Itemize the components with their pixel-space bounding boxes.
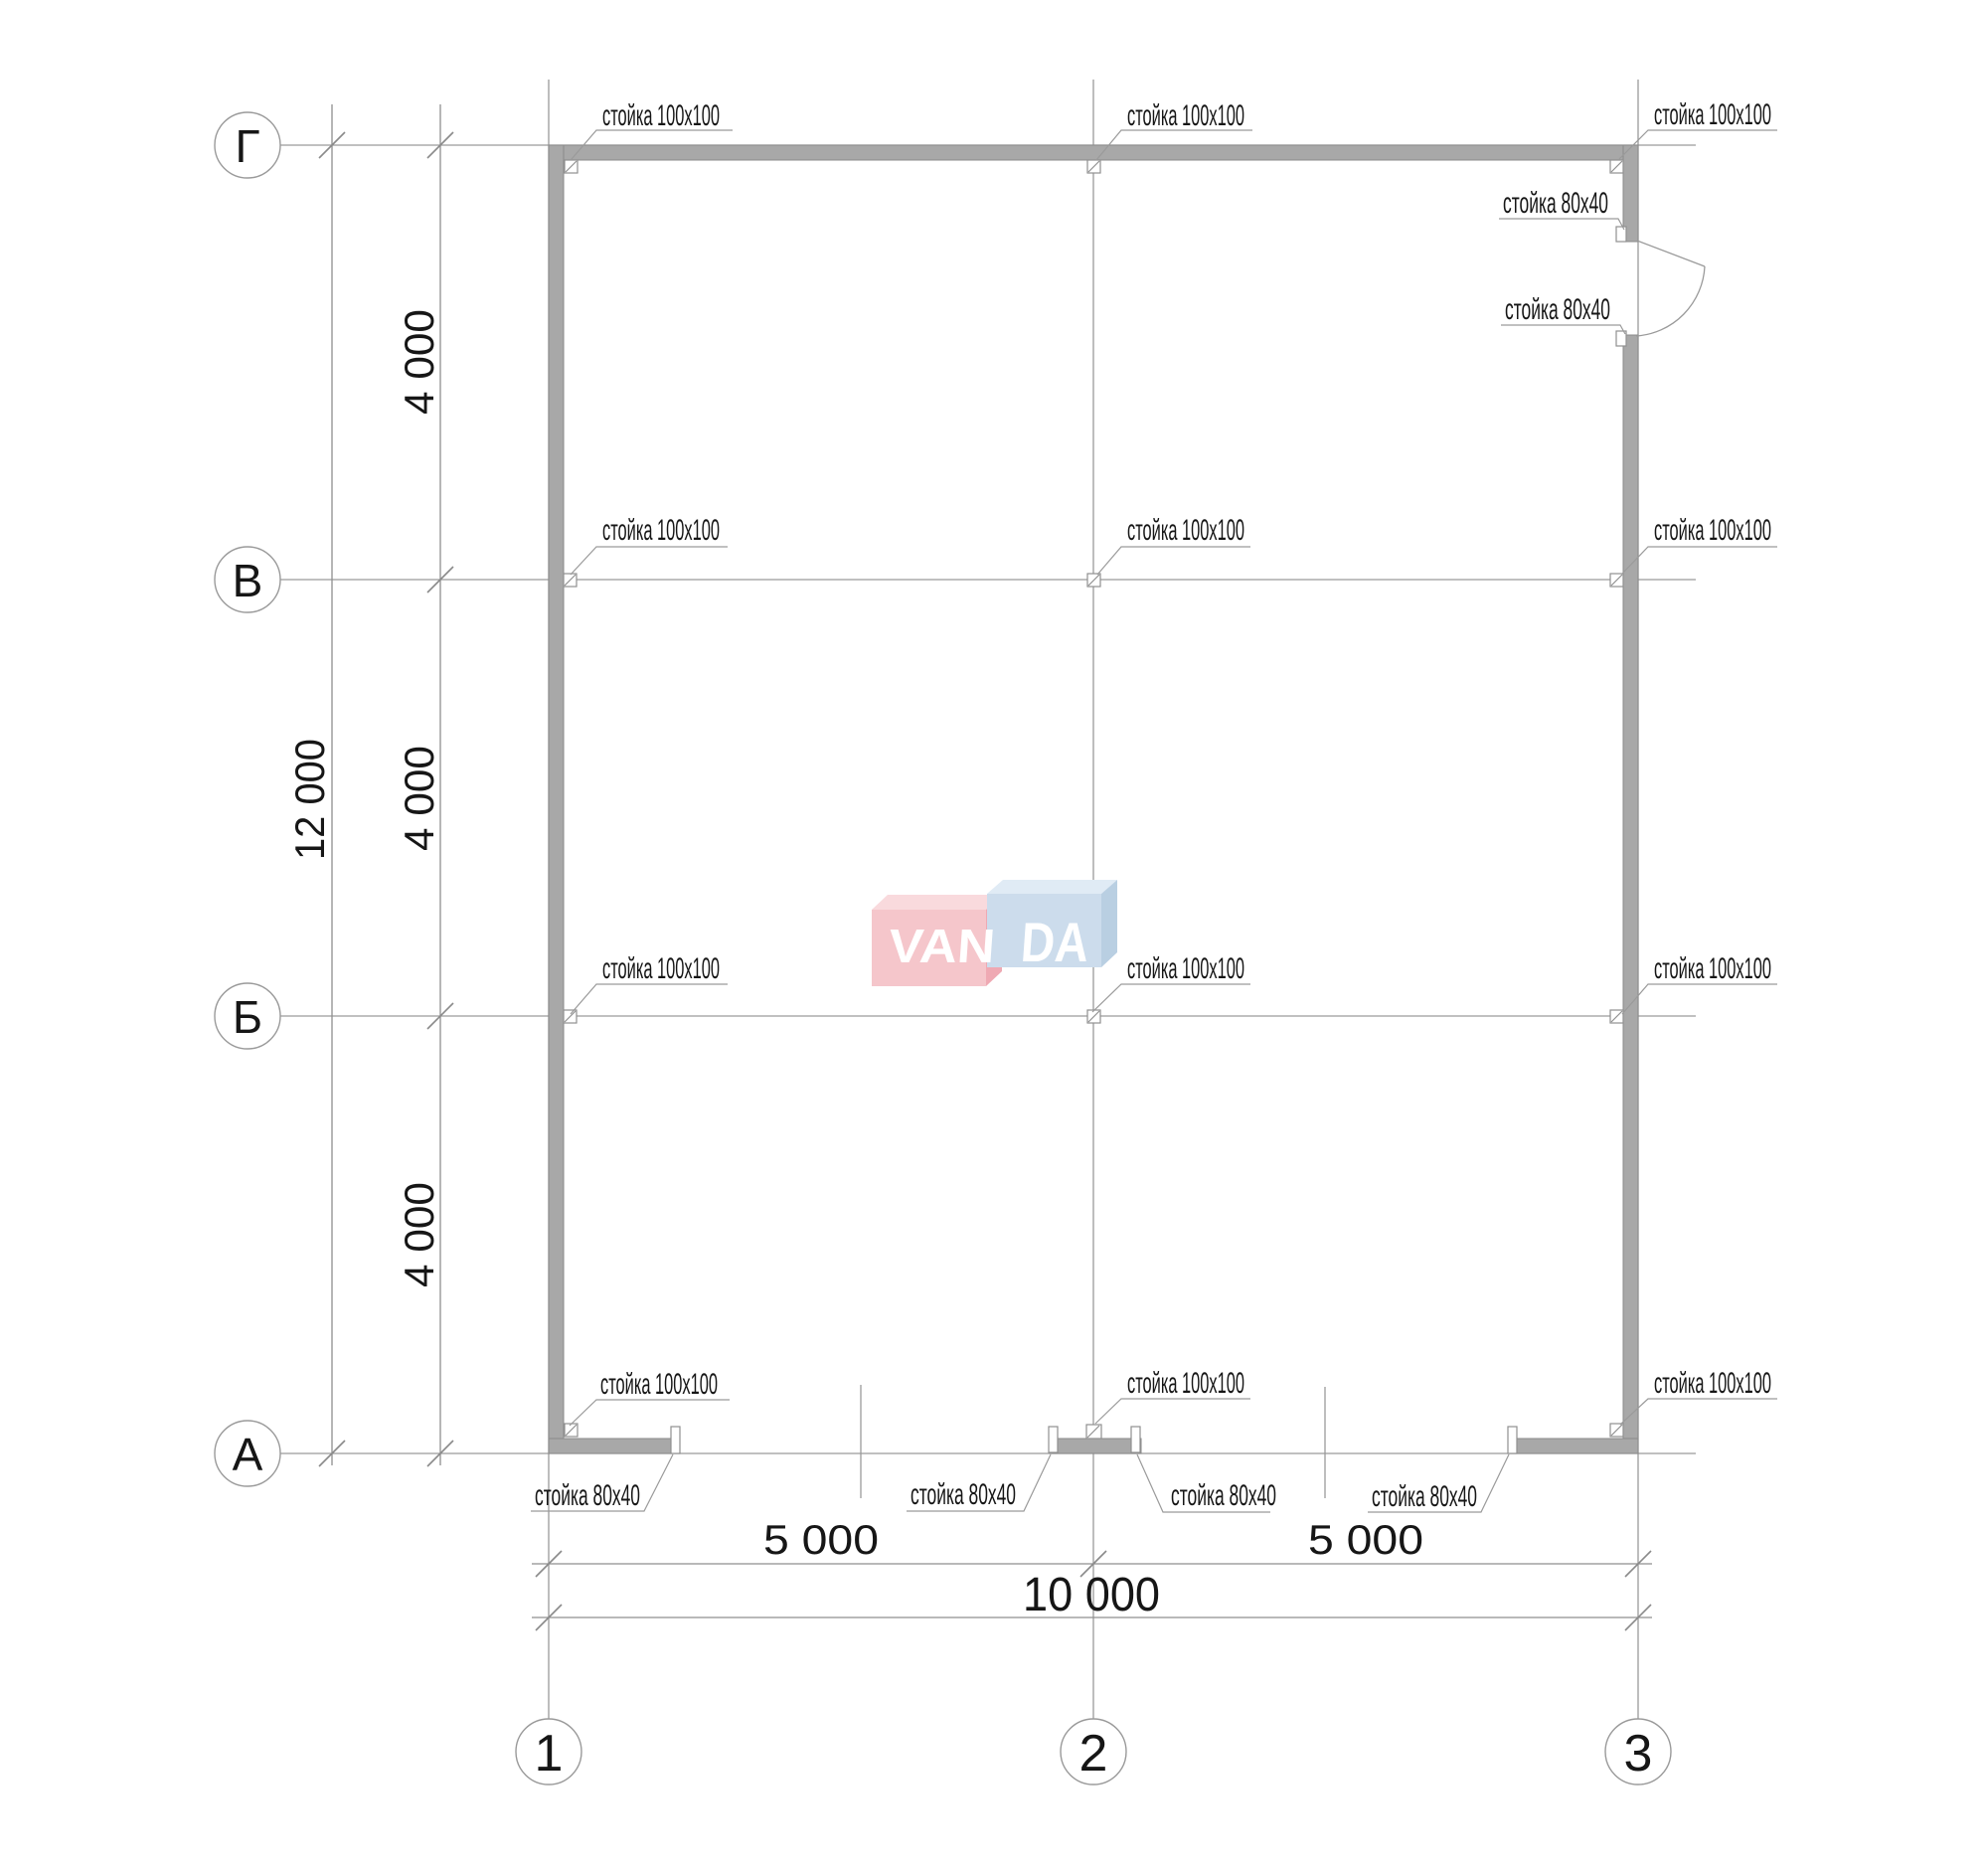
axis-row-label: В (233, 555, 263, 606)
logo-blue-box-side (1101, 880, 1117, 967)
post-label: стойка 100x100 (1127, 952, 1244, 985)
leader-lines (531, 130, 1777, 1512)
axis-row-label: Б (233, 991, 262, 1043)
post-label: стойка 100x100 (602, 952, 720, 985)
post-100-b3 (1610, 1010, 1623, 1023)
post-label: стойка 100x100 (1127, 1367, 1244, 1400)
dim-bottom-seg-1: 5 000 (763, 1516, 879, 1563)
dim-left-seg-2: 4 000 (396, 746, 442, 851)
post-label: стойка 100x100 (1654, 514, 1771, 547)
post-100-a2 (1086, 1425, 1101, 1439)
door-arc (1636, 266, 1705, 336)
axis-row-label: А (233, 1429, 263, 1480)
post-80-bottom-3 (1131, 1427, 1140, 1452)
post-80-bottom-4 (1508, 1427, 1517, 1453)
post-label: стойка 80x40 (911, 1478, 1016, 1511)
dim-bottom-total: 10 000 (1023, 1569, 1160, 1621)
posts-80x40 (671, 227, 1626, 1453)
post-label: стойка 100x100 (602, 514, 720, 547)
wall-bottom-left (549, 1439, 673, 1453)
post-label: стойка 80x40 (535, 1479, 640, 1512)
post-label: стойка 100x100 (600, 1368, 718, 1401)
logo-text-da: DA (1019, 911, 1090, 973)
wall-left (549, 145, 564, 1453)
dim-left-total: 12 000 (286, 739, 333, 860)
axis-col-label: 1 (535, 1725, 564, 1783)
post-label: стойка 80x40 (1505, 293, 1610, 326)
post-80-bottom-1 (671, 1427, 680, 1453)
post-100-a3 (1610, 1424, 1623, 1437)
post-label: стойка 100x100 (1654, 952, 1771, 985)
axis-col-label: 2 (1079, 1725, 1108, 1783)
post-100-v1 (564, 574, 577, 587)
logo-blue-box-top (987, 880, 1117, 894)
logo-pink-box-top (872, 895, 1002, 910)
post-label: стойка 100x100 (1127, 514, 1244, 547)
post-label: стойка 80x40 (1503, 187, 1608, 220)
dimension-ticks (319, 132, 1651, 1630)
wall-bottom-right (1509, 1439, 1638, 1453)
logo-text-van: VAN (887, 921, 997, 973)
post-100-g1 (565, 160, 578, 173)
post-100-v2 (1087, 574, 1100, 587)
post-labels-80x40: стойка 80x40 стойка 80x40 стойка 80x40 с… (535, 187, 1610, 1513)
dimension-lines (332, 104, 1652, 1617)
dim-bottom-seg-2: 5 000 (1308, 1516, 1423, 1563)
door-swing (1636, 241, 1705, 336)
post-label: стойка 80x40 (1171, 1479, 1276, 1512)
wall-bottom-middle (1050, 1439, 1141, 1453)
dim-left-seg-3: 4 000 (396, 1182, 442, 1287)
post-label: стойка 100x100 (602, 99, 720, 132)
post-80-bottom-2 (1049, 1427, 1058, 1452)
dimension-text: 4 000 4 000 4 000 12 000 5 000 5 000 10 … (286, 309, 1423, 1621)
wall-top (549, 145, 1638, 160)
post-100-g3 (1610, 160, 1623, 173)
post-80-door-top (1616, 227, 1626, 242)
floor-plan-drawing: VAN DA (0, 0, 1988, 1870)
dim-left-seg-1: 4 000 (396, 309, 442, 415)
post-label: стойка 80x40 (1372, 1480, 1477, 1513)
post-100-a1 (565, 1424, 578, 1437)
post-label: стойка 100x100 (1654, 98, 1771, 131)
post-100-b2 (1087, 1010, 1100, 1023)
axis-col-label: 3 (1624, 1725, 1653, 1783)
floor-plan-canvas: VAN DA (0, 0, 1988, 1870)
post-label: стойка 100x100 (1654, 1367, 1771, 1400)
wall-right-lower (1623, 335, 1638, 1453)
post-100-g2 (1087, 160, 1100, 173)
vanda-logo: VAN DA (872, 880, 1117, 986)
axis-row-label: Г (236, 120, 260, 172)
door-leaf (1637, 241, 1705, 266)
post-100-v3 (1610, 574, 1623, 587)
post-label: стойка 100x100 (1127, 99, 1244, 132)
post-100-b1 (564, 1010, 577, 1023)
